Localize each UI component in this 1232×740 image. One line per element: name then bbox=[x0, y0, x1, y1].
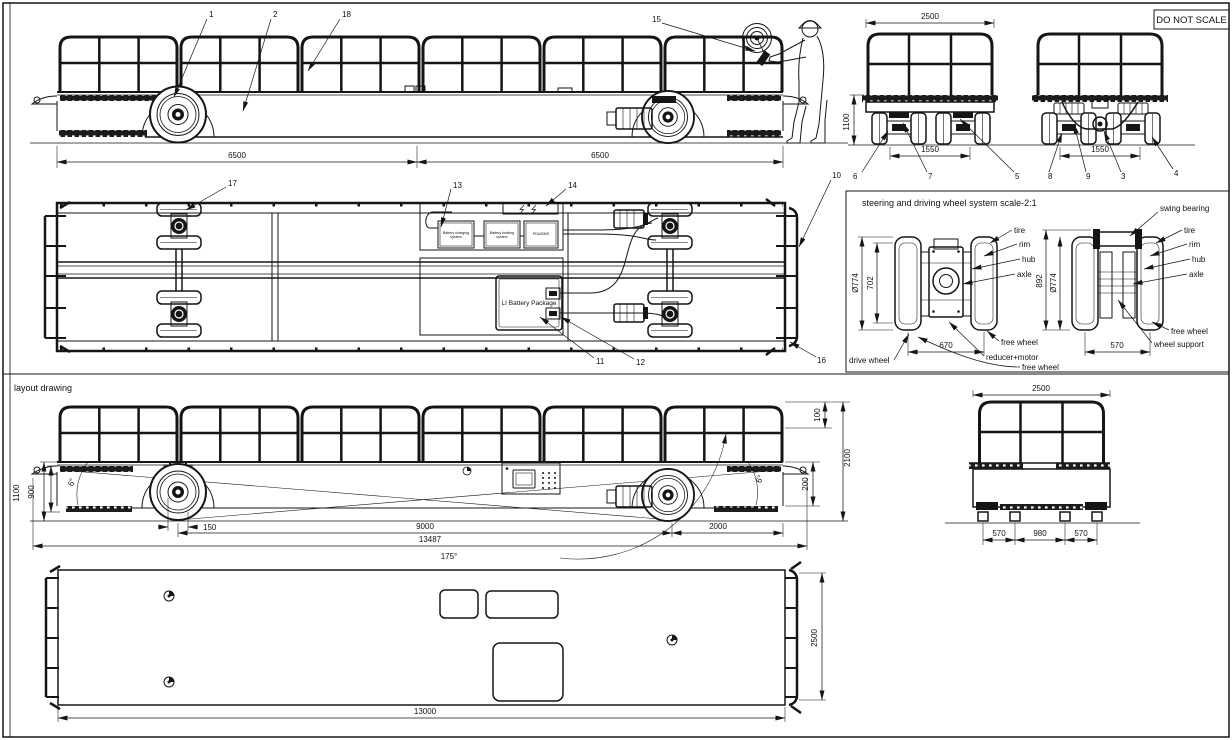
wheel-detail-panel: steering and driving wheel system scale-… bbox=[846, 191, 1229, 372]
right-end-gate bbox=[766, 199, 797, 355]
callout-12: 12 bbox=[636, 358, 645, 367]
label-axle-left: axle bbox=[1017, 270, 1032, 279]
dim-dia774-right: Ø774 bbox=[1049, 273, 1058, 293]
battery-heating-label: Battery heating system bbox=[486, 224, 518, 246]
dim-2500-width: 2500 bbox=[921, 12, 939, 21]
dim-900: 900 bbox=[27, 485, 36, 499]
dim-1100-height: 1100 bbox=[842, 113, 851, 131]
callout-6: 6 bbox=[853, 172, 858, 181]
dim-6deg-front: 6° bbox=[66, 477, 77, 487]
drawing-sheet: DO NOT SCALE bbox=[0, 0, 1232, 740]
swing-bearing-bar bbox=[1098, 232, 1137, 246]
dim-1550-right: 1550 bbox=[1091, 145, 1109, 154]
dim-980: 980 bbox=[1033, 529, 1047, 538]
end-view-rear: 1550 8 9 3 4 bbox=[1032, 34, 1179, 181]
callout-10: 10 bbox=[832, 171, 841, 180]
locating-hole bbox=[164, 591, 174, 601]
dim-13000: 13000 bbox=[414, 707, 437, 716]
callout-17: 17 bbox=[228, 179, 237, 188]
display-screen bbox=[513, 470, 535, 488]
pdu-bms-label: PDU/BMS bbox=[526, 228, 556, 240]
callout-7: 7 bbox=[928, 172, 933, 181]
dim-2100: 2100 bbox=[843, 449, 852, 467]
dim-9000: 9000 bbox=[416, 522, 434, 531]
callout-11: 11 bbox=[596, 357, 605, 366]
callout-5: 5 bbox=[1015, 172, 1020, 181]
dim-200: 200 bbox=[801, 477, 810, 491]
dim-dia774-left: Ø774 bbox=[851, 273, 860, 293]
detail-title: steering and driving wheel system scale-… bbox=[862, 198, 1037, 208]
dim-702: 702 bbox=[866, 276, 875, 290]
callout-18: 18 bbox=[342, 10, 351, 19]
label-hub-left: hub bbox=[1022, 255, 1036, 264]
dim-892: 892 bbox=[1035, 274, 1044, 288]
steering-wheel-front bbox=[150, 462, 206, 520]
label-axle-right: axle bbox=[1189, 270, 1204, 279]
battery-charging-label: Battery charging system bbox=[440, 224, 472, 246]
callout-4: 4 bbox=[1174, 169, 1179, 178]
right-end-gate bbox=[785, 562, 801, 713]
callout-3: 3 bbox=[1121, 172, 1126, 181]
plan-view: Battery charging system Battery heating … bbox=[45, 171, 841, 367]
dim-570-c: 570 bbox=[1074, 529, 1088, 538]
drive-wheel-assembly bbox=[895, 237, 997, 330]
label-wheel-support: wheel support bbox=[1153, 340, 1205, 349]
dim-6500-rear: 6500 bbox=[591, 151, 609, 160]
access-hatch bbox=[486, 591, 558, 618]
dim-13487: 13487 bbox=[419, 535, 442, 544]
label-free-wheel-2: free wheel bbox=[1022, 363, 1059, 372]
dim-2500-layout-end: 2500 bbox=[1032, 384, 1050, 393]
layout-end-view: 2500 570 980 570 bbox=[945, 384, 1140, 545]
label-hub-right: hub bbox=[1192, 255, 1206, 264]
cad-drawing: DO NOT SCALE bbox=[0, 0, 1232, 740]
layout-side-view: layout drawing bbox=[12, 383, 852, 561]
callout-1: 1 bbox=[209, 10, 214, 19]
label-drive-wheel: drive wheel bbox=[849, 356, 890, 365]
button-grid bbox=[542, 472, 556, 489]
battery-hatch bbox=[493, 643, 563, 701]
dim-6deg-rear: 6° bbox=[754, 474, 765, 484]
steering-wheel-front bbox=[150, 87, 206, 143]
do-not-scale-label: DO NOT SCALE bbox=[1156, 15, 1227, 26]
cable-reel bbox=[743, 24, 772, 67]
layout-drawing-label: layout drawing bbox=[14, 383, 72, 393]
side-view-dimensions: 6500 6500 bbox=[57, 146, 783, 168]
locating-hole bbox=[667, 635, 677, 645]
drive-wheel-rear bbox=[607, 91, 694, 143]
free-wheel-assembly bbox=[1072, 229, 1163, 330]
drive-bogie-plan bbox=[648, 203, 692, 249]
dim-2000: 2000 bbox=[709, 522, 727, 531]
drive-wheel-rear bbox=[607, 469, 694, 521]
label-free-wheel-3: free wheel bbox=[1171, 327, 1208, 336]
label-rim-right: rim bbox=[1189, 240, 1200, 249]
label-swing-bearing: swing bearing bbox=[1160, 204, 1209, 213]
dim-175deg: 175° bbox=[441, 552, 458, 561]
dim-1550-left: 1550 bbox=[921, 145, 939, 154]
label-free-wheel-1: free wheel bbox=[1001, 338, 1038, 347]
label-rim-left: rim bbox=[1019, 240, 1030, 249]
control-panel bbox=[502, 463, 560, 494]
label-reducer-motor: reducer+motor bbox=[986, 353, 1039, 362]
callout-8: 8 bbox=[1048, 172, 1053, 181]
label-tire-right: tire bbox=[1184, 226, 1196, 235]
dim-570-a: 570 bbox=[992, 529, 1006, 538]
dim-1100-layout: 1100 bbox=[12, 484, 21, 502]
callout-13: 13 bbox=[453, 181, 462, 190]
callout-9: 9 bbox=[1086, 172, 1091, 181]
dim-670: 670 bbox=[939, 341, 953, 350]
locating-hole bbox=[164, 677, 174, 687]
do-not-scale-box: DO NOT SCALE bbox=[1154, 10, 1229, 29]
dim-2500-plan: 2500 bbox=[810, 629, 819, 647]
bottom-plan-view: 13000 2500 bbox=[46, 562, 826, 722]
access-hatch bbox=[440, 590, 478, 618]
callout-2: 2 bbox=[273, 10, 278, 19]
callout-15: 15 bbox=[652, 15, 661, 24]
steering-bogie-plan bbox=[157, 203, 201, 249]
reducer-gearbox bbox=[929, 247, 963, 317]
dim-6500-front: 6500 bbox=[228, 151, 246, 160]
label-tire-left: tire bbox=[1014, 226, 1026, 235]
equipment-bay: Battery charging system Battery heating … bbox=[420, 203, 666, 335]
dim-100: 100 bbox=[813, 408, 822, 422]
detail-labels: tire rim hub axle swing bearing tire rim… bbox=[849, 204, 1209, 372]
callout-14: 14 bbox=[568, 181, 577, 190]
side-elevation-view: 6500 6500 1 2 18 15 bbox=[30, 10, 848, 168]
dim-570-detail: 570 bbox=[1110, 341, 1124, 350]
callout-16: 16 bbox=[817, 356, 826, 365]
dim-150: 150 bbox=[203, 523, 217, 532]
